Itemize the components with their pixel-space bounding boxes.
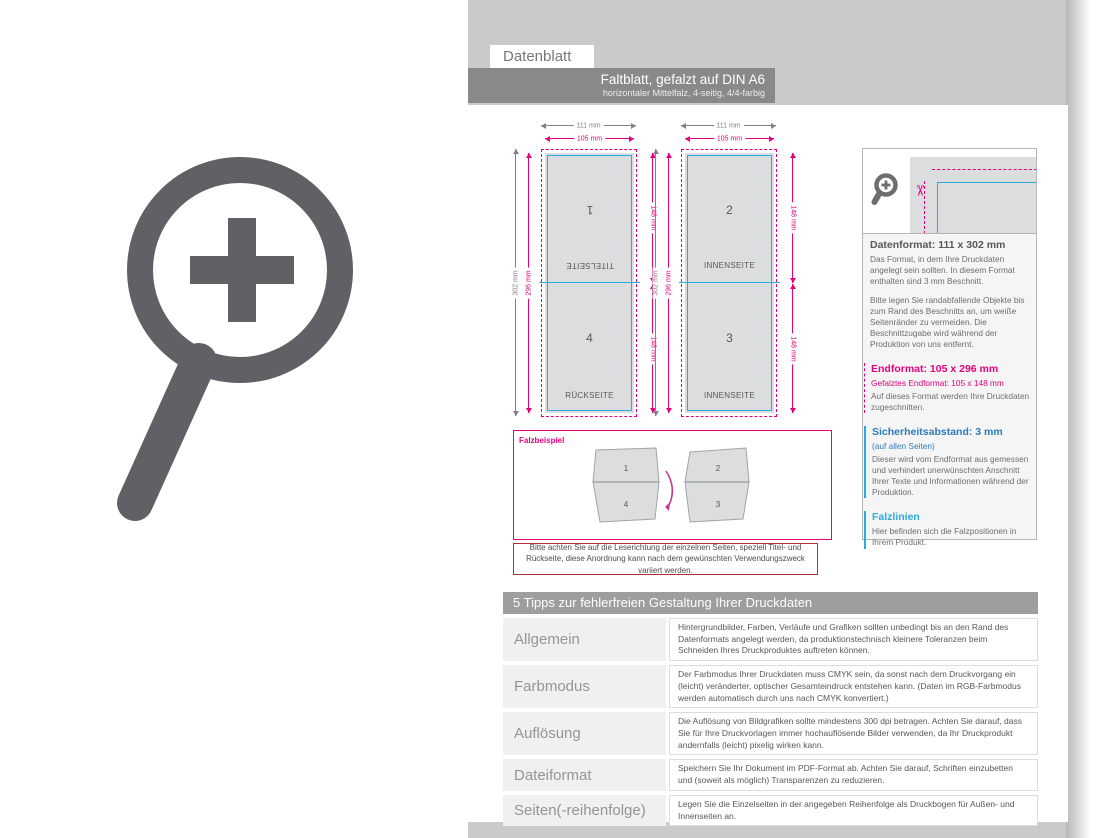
fold-arrow-icon [666, 471, 672, 505]
page-label: INNENSEITE [704, 261, 755, 270]
svg-text:3: 3 [716, 500, 721, 509]
section-body: Bitte legen Sie randabfallende Objekte b… [870, 295, 1032, 350]
tip-text: Der Farbmodus Ihrer Druckdaten muss CMYK… [669, 665, 1038, 708]
safety-box-1 [547, 155, 632, 411]
page-edge-shadow [1066, 0, 1090, 838]
fold-line-1 [539, 282, 640, 283]
dim-outer-width-2: 111 mm [681, 125, 776, 126]
fold-example-drawing: 1 4 2 3 [514, 431, 829, 537]
section-body: Dieser wird vom Endformat aus gemessen u… [872, 454, 1032, 498]
section-title: Endformat: 105 x 296 mm [871, 363, 1032, 375]
safety-line-detail [937, 182, 1036, 183]
table-row: Allgemein Hintergrundbilder, Farben, Ver… [503, 618, 1038, 661]
fold-example-label: Falzbeispiel [519, 436, 564, 445]
section-title: Falzlinien [872, 511, 1032, 523]
format-info-panel: ✂ Datenformat: 111 x 302 mm Das Format, … [862, 148, 1037, 540]
falzlinien-section: Falzlinien Hier befinden sich die Falzpo… [864, 511, 1032, 548]
dim-inner-height-2: 296 mm [668, 153, 669, 413]
sheet-content: 111 mm 105 mm 302 mm 296 mm 148 mm 148 m… [468, 105, 1068, 822]
tip-text: Hintergrundbilder, Farben, Verläufe und … [669, 618, 1038, 661]
section-subtitle: Gefalztes Endformat: 105 x 148 mm [871, 378, 1032, 388]
tip-text: Speichern Sie Ihr Dokument im PDF-Format… [669, 759, 1038, 790]
tip-text: Legen Sie die Einzelseiten in der angege… [669, 795, 1038, 826]
bleed-line-detail [932, 169, 1036, 170]
product-title-bar: Faltblatt, gefalzt auf DIN A6 horizontal… [468, 68, 775, 103]
page-number: 4 [586, 331, 593, 345]
tip-label: Dateiformat [503, 759, 666, 790]
tip-label: Seiten(-reihenfolge) [503, 795, 666, 826]
svg-text:2: 2 [716, 464, 721, 473]
safety-line-detail [937, 182, 938, 234]
page-label: RÜCKSEITE [565, 391, 614, 400]
dim-inner-width-1: 105 mm [545, 138, 634, 139]
dim-inner-width-2: 105 mm [685, 138, 774, 139]
datasheet-page: Datenblatt Faltblatt, gefalzt auf DIN A6… [468, 0, 1090, 838]
endformat-section: Endformat: 105 x 296 mm Gefalztes Endfor… [864, 363, 1032, 413]
corner-detail-drawing: ✂ [910, 157, 1036, 233]
dim-half-height-2a: 148 mm [792, 153, 793, 283]
page-number: 1 [586, 203, 593, 217]
table-row: Auflösung Die Auflösung von Bildgrafiken… [503, 712, 1038, 755]
datenformat-section: Datenformat: 111 x 302 mm Das Format, in… [864, 239, 1032, 350]
datenblatt-label: Datenblatt [490, 45, 594, 68]
tips-header: 5 Tipps zur fehlerfreien Gestaltung Ihre… [503, 592, 1038, 614]
tips-table: Allgemein Hintergrundbilder, Farben, Ver… [503, 618, 1038, 830]
tip-text: Die Auflösung von Bildgrafiken sollte mi… [669, 712, 1038, 755]
dim-half-height-1a: 148 mm [652, 153, 653, 283]
sicherheitsabstand-section: Sicherheitsabstand: 3 mm (auf allen Seit… [864, 426, 1032, 498]
dim-outer-height-2: 302 mm [655, 149, 656, 416]
section-title: Sicherheitsabstand: 3 mm [872, 426, 1032, 438]
page-label: TITELSEITE [566, 261, 614, 270]
section-subtitle: (auf allen Seiten) [872, 441, 1032, 451]
safety-box-2 [687, 155, 772, 411]
detail-zoom-box: ✂ [863, 149, 1036, 234]
table-row: Farbmodus Der Farbmodus Ihrer Druckdaten… [503, 665, 1038, 708]
page-diagram-1: 1 TITELSEITE 4 RÜCKSEITE [545, 153, 634, 413]
zoom-plus-icon-small [870, 172, 908, 212]
format-descriptions: Datenformat: 111 x 302 mm Das Format, in… [864, 239, 1032, 549]
reading-direction-note: Bitte achten Sie auf die Leserichtung de… [513, 543, 818, 575]
tip-label: Auflösung [503, 712, 666, 755]
svg-text:4: 4 [624, 500, 629, 509]
section-title: Datenformat: 111 x 302 mm [870, 239, 1032, 251]
dim-outer-width-1: 111 mm [541, 125, 636, 126]
dim-half-height-2b: 148 mm [792, 284, 793, 413]
dim-half-height-1b: 148 mm [652, 284, 653, 413]
fold-line-2 [679, 282, 780, 283]
tip-label: Allgemein [503, 618, 666, 661]
scissors-icon: ✂ [912, 184, 927, 197]
section-body: Das Format, in dem Ihre Druckdaten angel… [870, 254, 1032, 287]
page-number: 2 [726, 203, 733, 217]
page-number: 3 [726, 331, 733, 345]
product-subtitle: horizontaler Mittelfalz, 4-seitig, 4/4-f… [468, 88, 765, 99]
table-row: Seiten(-reihenfolge) Legen Sie die Einze… [503, 795, 1038, 826]
tip-label: Farbmodus [503, 665, 666, 708]
page-label: INNENSEITE [704, 391, 755, 400]
table-row: Dateiformat Speichern Sie Ihr Dokument i… [503, 759, 1038, 790]
page-diagram-2: 2 INNENSEITE 3 INNENSEITE [685, 153, 774, 413]
fold-example-box: Falzbeispiel 1 4 2 3 [513, 430, 832, 540]
section-body: Auf dieses Format werden Ihre Druckdaten… [871, 391, 1032, 413]
dim-inner-height-1: 296 mm [528, 153, 529, 413]
svg-text:1: 1 [624, 464, 629, 473]
product-title: Faltblatt, gefalzt auf DIN A6 [468, 71, 765, 88]
zoom-plus-icon [105, 155, 355, 535]
section-body: Hier befinden sich die Falzpositionen in… [872, 526, 1032, 548]
dim-outer-height-1: 302 mm [515, 149, 516, 416]
